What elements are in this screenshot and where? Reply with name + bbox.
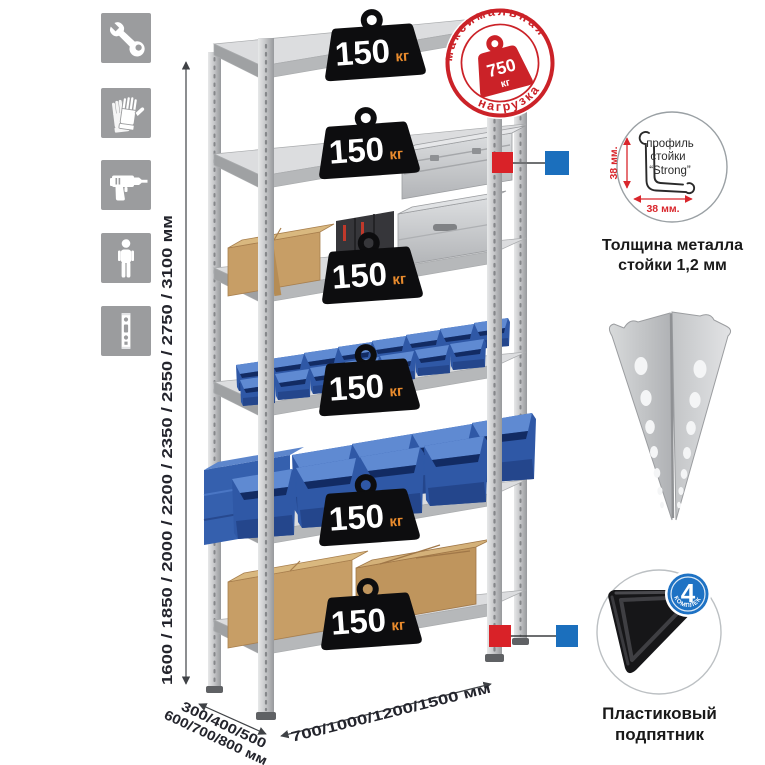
svg-text:150: 150	[328, 497, 386, 538]
load-badge-1: 150 кг	[321, 9, 426, 82]
profile-caption-line1: Толщина металла	[585, 236, 760, 256]
blue-marker-bottom	[556, 625, 578, 647]
profile-dim-vertical: 38 мм.	[608, 146, 620, 179]
svg-text:150: 150	[328, 367, 386, 408]
svg-text:150: 150	[334, 32, 392, 73]
foot-caption-line1: Пластиковый	[572, 703, 747, 724]
angle-profile-illustration	[609, 312, 730, 520]
svg-text:кг: кг	[391, 617, 406, 635]
profile-dim-horizontal: 38 мм.	[646, 203, 679, 215]
svg-text:кг: кг	[389, 383, 404, 401]
profile-caption-line2: стойки 1,2 мм	[585, 256, 760, 276]
width-dimension: 700/1000/1200/1500 мм	[281, 680, 492, 745]
svg-text:кг: кг	[389, 513, 404, 531]
svg-text:150: 150	[331, 255, 389, 296]
height-dimension-label: 1600 / 1850 / 2000 / 2200 / 2350 / 2550 …	[159, 215, 176, 685]
svg-text:“Strong”: “Strong”	[649, 165, 691, 177]
max-load-stamp: максимальная нагрузка 750 кг	[430, 0, 568, 132]
svg-text:150: 150	[330, 601, 388, 642]
svg-text:кг: кг	[389, 146, 404, 164]
shelving-infographic: 1600 / 1850 / 2000 / 2200 / 2350 / 2550 …	[0, 0, 765, 765]
foot-caption-line2: подпятник	[572, 724, 747, 745]
svg-text:150: 150	[328, 130, 386, 171]
blue-marker-top	[545, 151, 569, 175]
svg-text:кг: кг	[392, 271, 407, 289]
foot-caption: Пластиковый подпятник	[572, 703, 747, 745]
height-dimension: 1600 / 1850 / 2000 / 2200 / 2350 / 2550 …	[159, 62, 186, 685]
profile-caption: Толщина металла стойки 1,2 мм	[585, 236, 760, 276]
svg-text:кг: кг	[395, 48, 410, 66]
red-marker-bottom	[489, 625, 511, 647]
detail-connectors	[489, 151, 578, 647]
svg-text:профиль: профиль	[646, 138, 694, 150]
scene-svg: 1600 / 1850 / 2000 / 2200 / 2350 / 2550 …	[0, 0, 765, 765]
profile-detail-circle: 38 мм. 38 мм. профиль стойки “Strong”	[608, 112, 727, 222]
load-badge-2: 150 кг	[315, 107, 420, 180]
svg-text:стойки: стойки	[650, 151, 685, 163]
width-label: 700/1000/1200/1500 мм	[289, 680, 492, 745]
red-marker-top	[492, 152, 513, 173]
